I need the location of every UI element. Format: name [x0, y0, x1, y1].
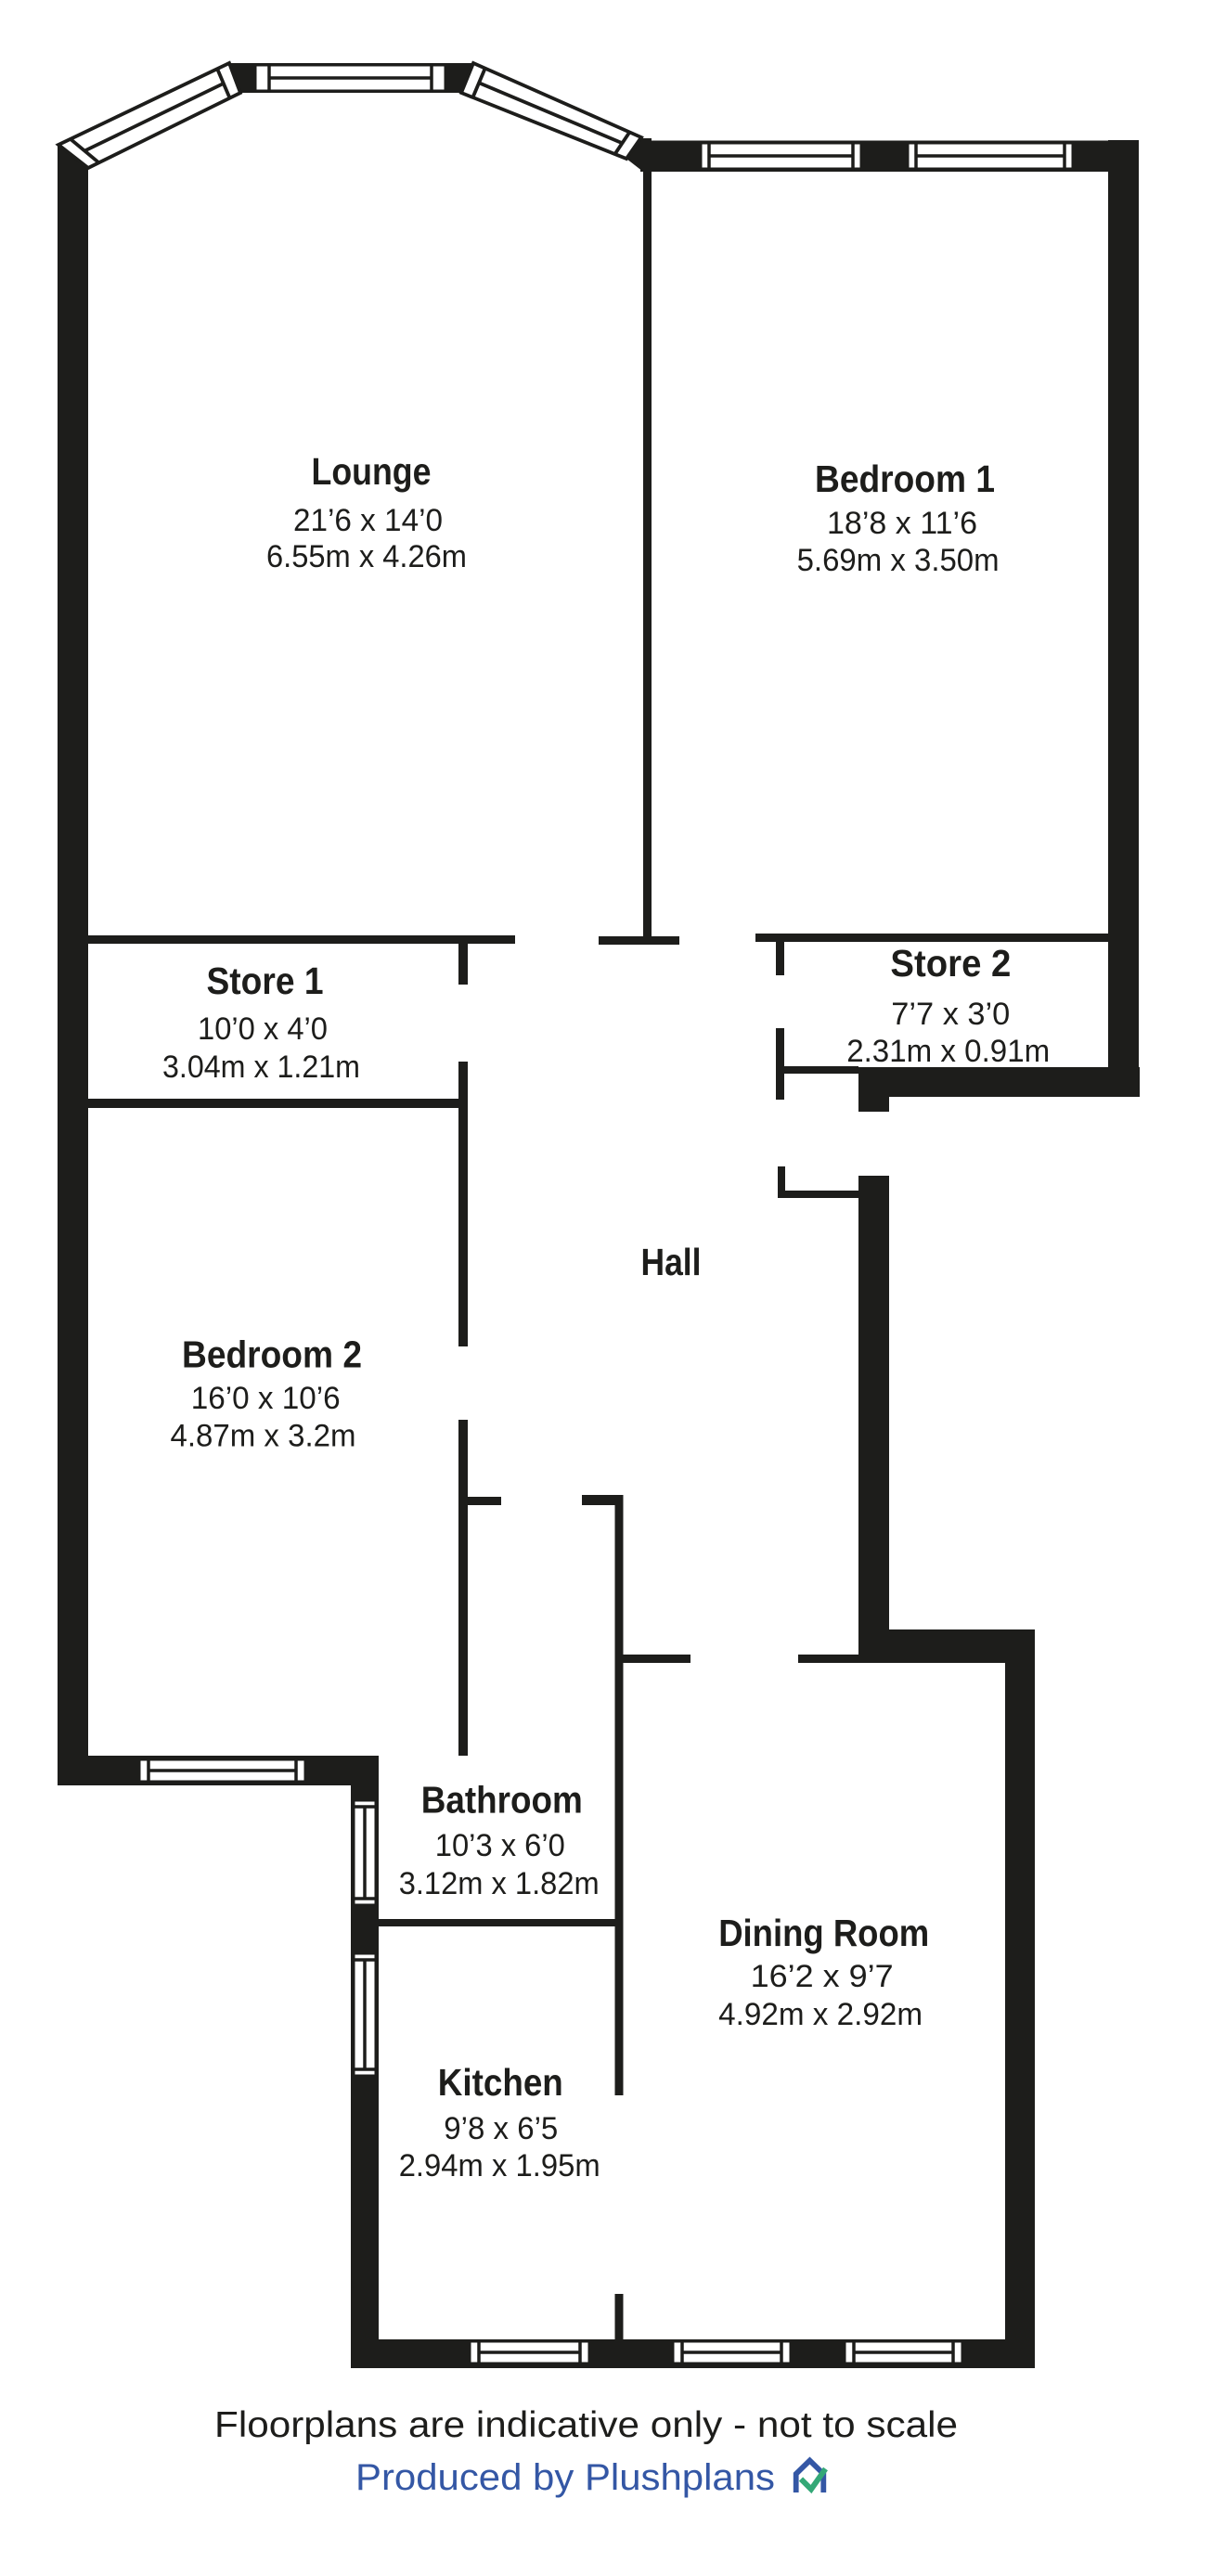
svg-text:Bathroom: Bathroom: [421, 1779, 583, 1822]
svg-text:2.94m x 1.95m: 2.94m x 1.95m: [399, 2148, 600, 2183]
svg-text:7’7 x 3’0: 7’7 x 3’0: [891, 997, 1010, 1032]
svg-text:Dining Room: Dining Room: [718, 1912, 929, 1954]
svg-text:21’6 x 14’0: 21’6 x 14’0: [293, 503, 443, 538]
svg-text:6.55m x 4.26m: 6.55m x 4.26m: [266, 539, 467, 574]
svg-text:Lounge: Lounge: [312, 450, 432, 493]
svg-text:10’3 x 6’0: 10’3 x 6’0: [435, 1828, 565, 1863]
svg-text:Store 1: Store 1: [207, 960, 324, 1002]
svg-text:Kitchen: Kitchen: [438, 2061, 563, 2104]
svg-text:4.87m x 3.2m: 4.87m x 3.2m: [171, 1419, 356, 1454]
svg-text:Bedroom 2: Bedroom 2: [182, 1333, 362, 1376]
svg-text:3.04m x 1.21m: 3.04m x 1.21m: [162, 1050, 360, 1085]
svg-text:Bedroom 1: Bedroom 1: [815, 457, 995, 500]
svg-text:5.69m x 3.50m: 5.69m x 3.50m: [797, 543, 1000, 578]
svg-text:10’0 x 4’0: 10’0 x 4’0: [198, 1011, 328, 1047]
svg-text:9’8 x 6’5: 9’8 x 6’5: [444, 2111, 558, 2146]
svg-text:Hall: Hall: [641, 1241, 702, 1283]
svg-text:18’8 x 11’6: 18’8 x 11’6: [827, 506, 977, 541]
svg-text:Floorplans are indicative only: Floorplans are indicative only - not to …: [214, 2405, 958, 2445]
svg-text:Store 2: Store 2: [890, 942, 1011, 985]
svg-text:3.12m x 1.82m: 3.12m x 1.82m: [399, 1866, 600, 1901]
svg-text:16’0 x 10’6: 16’0 x 10’6: [191, 1381, 341, 1416]
svg-text:16’2 x 9’7: 16’2 x 9’7: [751, 1959, 894, 1994]
svg-text:2.31m x 0.91m: 2.31m x 0.91m: [846, 1034, 1050, 1069]
svg-text:4.92m x 2.92m: 4.92m x 2.92m: [718, 1997, 923, 2032]
svg-text:Produced by Plushplans: Produced by Plushplans: [355, 2457, 775, 2498]
